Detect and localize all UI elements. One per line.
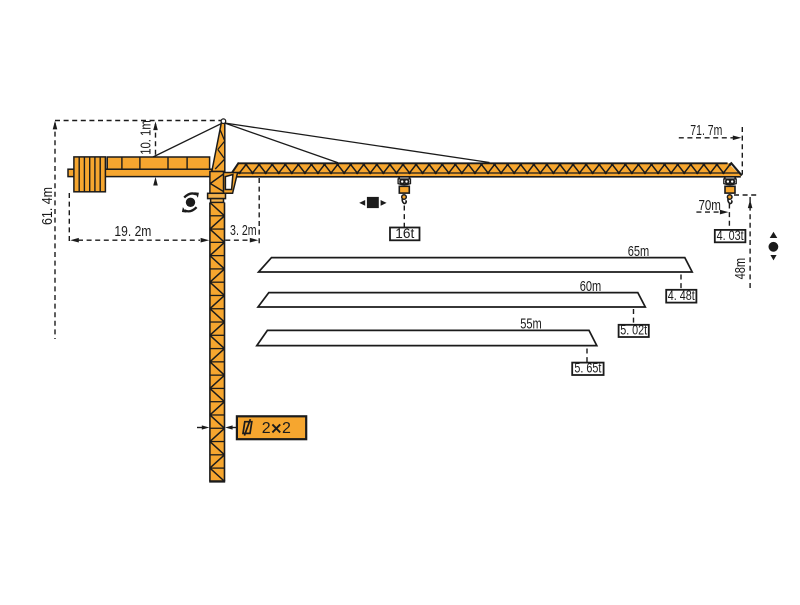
svg-text:5. 65t: 5. 65t — [574, 361, 601, 376]
svg-text:10. 1m: 10. 1m — [138, 120, 154, 155]
svg-text:4. 48t: 4. 48t — [668, 288, 695, 303]
svg-text:4. 03t: 4. 03t — [717, 228, 744, 243]
svg-text:61. 4m: 61. 4m — [40, 187, 56, 225]
svg-text:5. 02t: 5. 02t — [620, 323, 647, 338]
svg-text:55m: 55m — [520, 317, 542, 333]
svg-text:19. 2m: 19. 2m — [114, 224, 151, 240]
svg-text:48m: 48m — [733, 258, 749, 280]
svg-text:70m: 70m — [698, 198, 721, 214]
svg-text:71. 7m: 71. 7m — [690, 123, 722, 139]
svg-text:65m: 65m — [628, 244, 650, 260]
svg-text:16t: 16t — [395, 226, 414, 241]
svg-text:60m: 60m — [580, 279, 602, 295]
svg-text:2: 2 — [282, 420, 291, 437]
svg-text:2: 2 — [262, 420, 271, 437]
svg-text:3. 2m: 3. 2m — [230, 223, 257, 239]
